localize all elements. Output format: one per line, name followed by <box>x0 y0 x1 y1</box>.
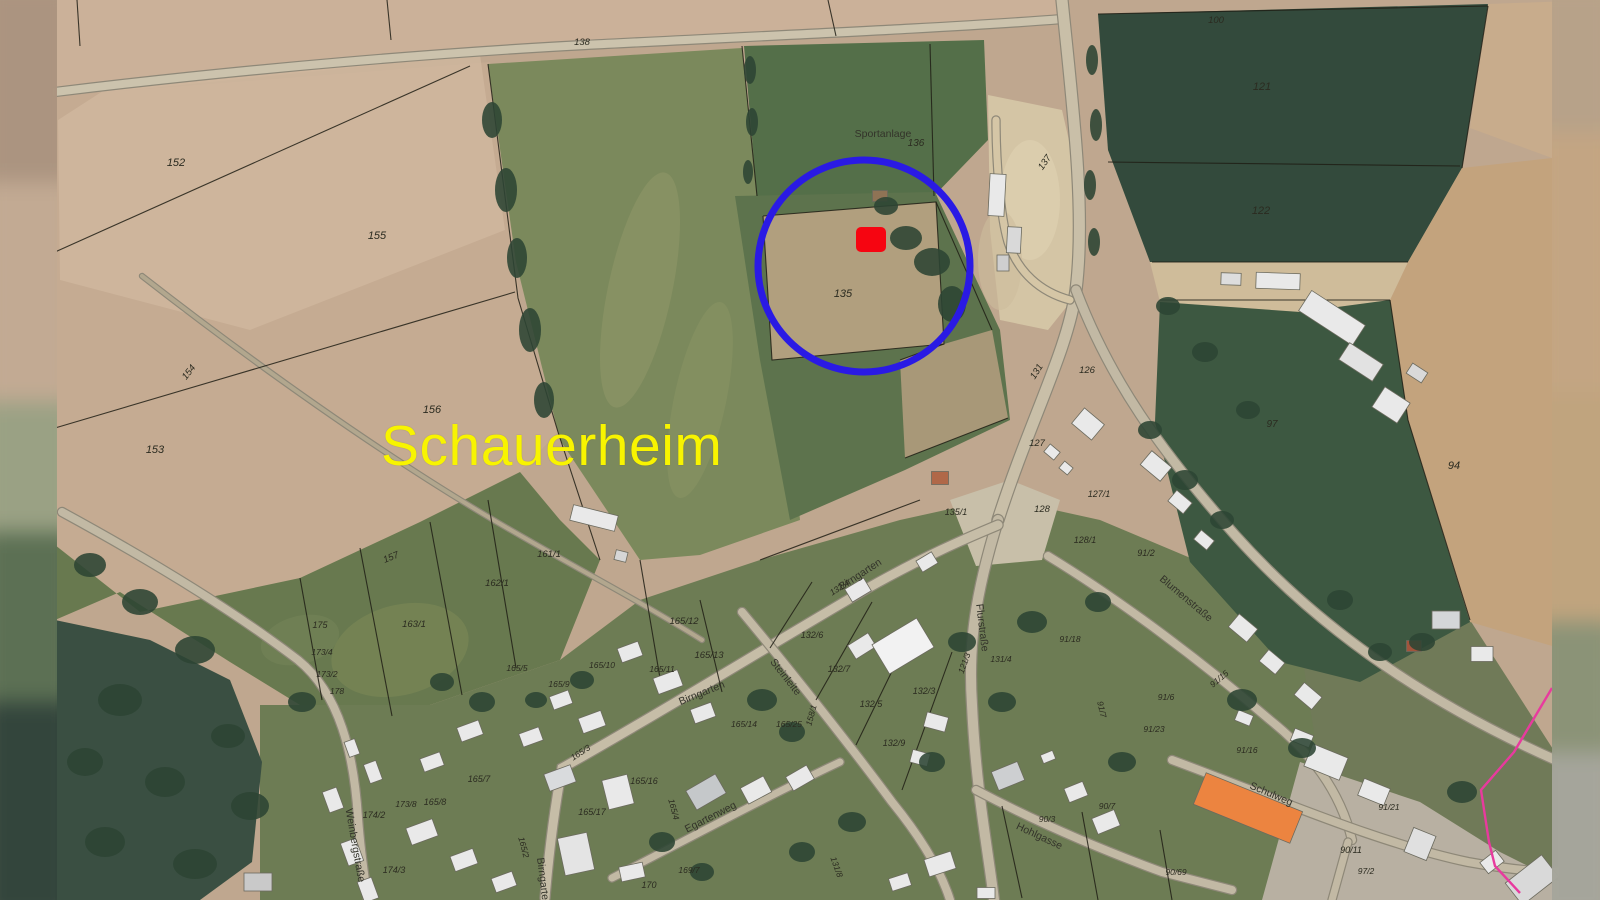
building <box>1256 272 1301 290</box>
tree <box>98 684 142 716</box>
parcel-number-label: 173/8 <box>395 799 417 809</box>
tree <box>67 748 103 776</box>
highlight-marker <box>856 227 886 252</box>
map-canvas[interactable]: SportanlageBirngartenBirngartenBirngarte… <box>0 0 1600 900</box>
tree <box>1017 611 1047 633</box>
parcel-number-label: 165/17 <box>578 807 607 817</box>
parcel-number-label: 138 <box>574 37 591 48</box>
parcel-number-label: 132/7 <box>828 664 852 674</box>
tree <box>74 553 106 577</box>
edge-color-band <box>1552 392 1600 622</box>
parcel-number-label: 126 <box>1079 365 1096 376</box>
parcel-number-label: 162/1 <box>485 578 509 589</box>
parcel-number-label: 122 <box>1252 205 1270 217</box>
building <box>1221 273 1241 286</box>
tree <box>1192 342 1218 362</box>
edge-color-band <box>0 702 57 900</box>
tree <box>1084 170 1096 200</box>
parcel-number-label: 97/2 <box>1358 866 1375 876</box>
place-label: Schauerheim <box>381 417 722 477</box>
tree <box>649 832 675 852</box>
tree <box>1138 421 1162 439</box>
map-screenshot: SportanlageBirngartenBirngartenBirngarte… <box>0 0 1600 900</box>
parcel-number-label: 173/2 <box>316 669 338 679</box>
tree <box>534 382 554 418</box>
parcel-number-label: 91/21 <box>1378 802 1400 812</box>
tree <box>469 692 495 712</box>
tree <box>919 752 945 772</box>
tree <box>288 692 316 712</box>
parcel-number-label: 132/5 <box>860 699 884 709</box>
tree <box>890 226 922 250</box>
parcel-number-label: 165/11 <box>649 664 675 674</box>
parcel-number-label: 165/8 <box>424 797 447 807</box>
edge-color-band <box>1552 132 1600 392</box>
parcel-number-label: 91/2 <box>1137 548 1155 558</box>
parcel-number-label: 90/69 <box>1165 867 1187 877</box>
parcel-number-label: 165/13 <box>694 650 724 661</box>
parcel-number-label: 135 <box>834 288 853 300</box>
building <box>1432 611 1460 629</box>
tree <box>495 168 517 212</box>
tree <box>430 673 454 691</box>
edge-color-band <box>1552 622 1600 752</box>
tree <box>789 842 815 862</box>
parcel-number-label: 165/12 <box>669 616 699 627</box>
tree <box>948 632 976 652</box>
edge-color-band <box>0 182 57 402</box>
parcel-number-label: 165/25 <box>776 719 802 729</box>
parcel-number-label: 100 <box>1208 15 1225 26</box>
parcel-number-label: 174/2 <box>363 810 386 820</box>
tree <box>145 767 185 797</box>
tree <box>211 724 245 748</box>
tree <box>988 692 1016 712</box>
building <box>1006 227 1021 254</box>
tree <box>744 56 756 84</box>
parcel-number-label: 165/9 <box>548 679 570 689</box>
parcel-number-label: 161/1 <box>537 549 561 560</box>
tree <box>874 197 898 215</box>
parcel-number-label: 94 <box>1448 460 1460 472</box>
tree <box>1327 590 1353 610</box>
blurred-right-edge <box>1552 0 1600 900</box>
tree <box>1368 643 1392 661</box>
parcel-number-label: 165/5 <box>506 663 528 673</box>
tree <box>570 671 594 689</box>
building <box>997 255 1009 271</box>
parcel-number-label: 170 <box>641 880 656 890</box>
tree <box>173 849 217 879</box>
tree <box>507 238 527 278</box>
parcel-number-label: 90/11 <box>1340 845 1362 855</box>
field-parcel-135 <box>763 202 944 360</box>
tree <box>914 248 950 276</box>
building <box>932 472 949 485</box>
tree <box>1088 228 1100 256</box>
edge-color-band <box>0 532 57 702</box>
edge-color-band <box>0 402 57 532</box>
tree <box>838 812 866 832</box>
tree <box>525 692 547 708</box>
tree <box>1236 401 1260 419</box>
building <box>977 888 995 899</box>
tree <box>175 636 215 664</box>
tree <box>1086 45 1098 75</box>
parcel-number-label: 127 <box>1029 438 1046 449</box>
parcel-number-label: 128/1 <box>1074 535 1097 545</box>
parcel-number-label: 91/23 <box>1143 724 1165 734</box>
parcel-number-label: 174/3 <box>383 865 406 875</box>
parcel-number-label: 132/6 <box>801 630 824 640</box>
building <box>1471 647 1493 662</box>
tree <box>1227 689 1257 711</box>
parcel-number-label: 97 <box>1266 419 1278 430</box>
blurred-right-edge-colors <box>1552 0 1600 900</box>
tree <box>1409 633 1435 651</box>
parcel-number-label: 152 <box>167 157 185 169</box>
edge-color-band <box>1552 752 1600 900</box>
building <box>988 174 1006 217</box>
blurred-left-edge-colors <box>0 0 57 900</box>
parcel-number-label: 132/3 <box>913 686 936 696</box>
edge-color-band <box>1552 0 1600 132</box>
tree <box>519 308 541 352</box>
parcel-number-label: 175 <box>312 620 328 630</box>
tree <box>747 689 777 711</box>
parcel-number-label: 127/1 <box>1088 489 1111 499</box>
tree <box>231 792 269 820</box>
parcel-number-label: 169/7 <box>678 865 700 875</box>
parcel-number-label: 90/7 <box>1099 801 1116 811</box>
parcel-number-label: 131/4 <box>990 654 1012 664</box>
parcel-number-label: 165/14 <box>731 719 757 729</box>
tree <box>743 160 753 184</box>
tree <box>85 827 125 857</box>
building <box>244 873 272 891</box>
tree <box>1210 511 1234 529</box>
parcel-number-label: 135/1 <box>945 507 968 517</box>
parcel-number-label: 155 <box>368 230 387 242</box>
parcel-number-label: 136 <box>908 138 925 149</box>
tree <box>1172 470 1198 490</box>
tree <box>1108 752 1136 772</box>
parcel-number-label: 91/16 <box>1236 745 1258 755</box>
edge-color-band <box>0 0 57 182</box>
street-label: Sportanlage <box>855 128 912 140</box>
tree <box>1447 781 1477 803</box>
parcel-number-label: 121 <box>1253 81 1271 93</box>
parcel-number-label: 173/4 <box>311 647 333 657</box>
parcel-number-label: 90/3 <box>1039 814 1056 824</box>
tree <box>482 102 502 138</box>
parcel-number-label: 165/7 <box>468 774 492 784</box>
tree <box>1085 592 1111 612</box>
tree <box>746 108 758 136</box>
tree <box>1288 738 1316 758</box>
field-sportanlage <box>744 40 988 198</box>
parcel-number-label: 165/16 <box>630 776 658 786</box>
tree <box>1156 297 1180 315</box>
blurred-left-edge <box>0 0 57 900</box>
tree <box>1090 109 1102 141</box>
parcel-number-label: 178 <box>330 686 344 696</box>
parcel-number-label: 163/1 <box>402 619 426 630</box>
parcel-number-label: 132/9 <box>883 738 906 748</box>
parcel-number-label: 91/18 <box>1059 634 1081 644</box>
parcel-number-label: 165/10 <box>589 660 615 670</box>
parcel-number-label: 128 <box>1034 504 1051 515</box>
parcel-number-label: 153 <box>146 444 165 456</box>
tree <box>122 589 158 615</box>
parcel-number-label: 91/6 <box>1158 692 1175 702</box>
